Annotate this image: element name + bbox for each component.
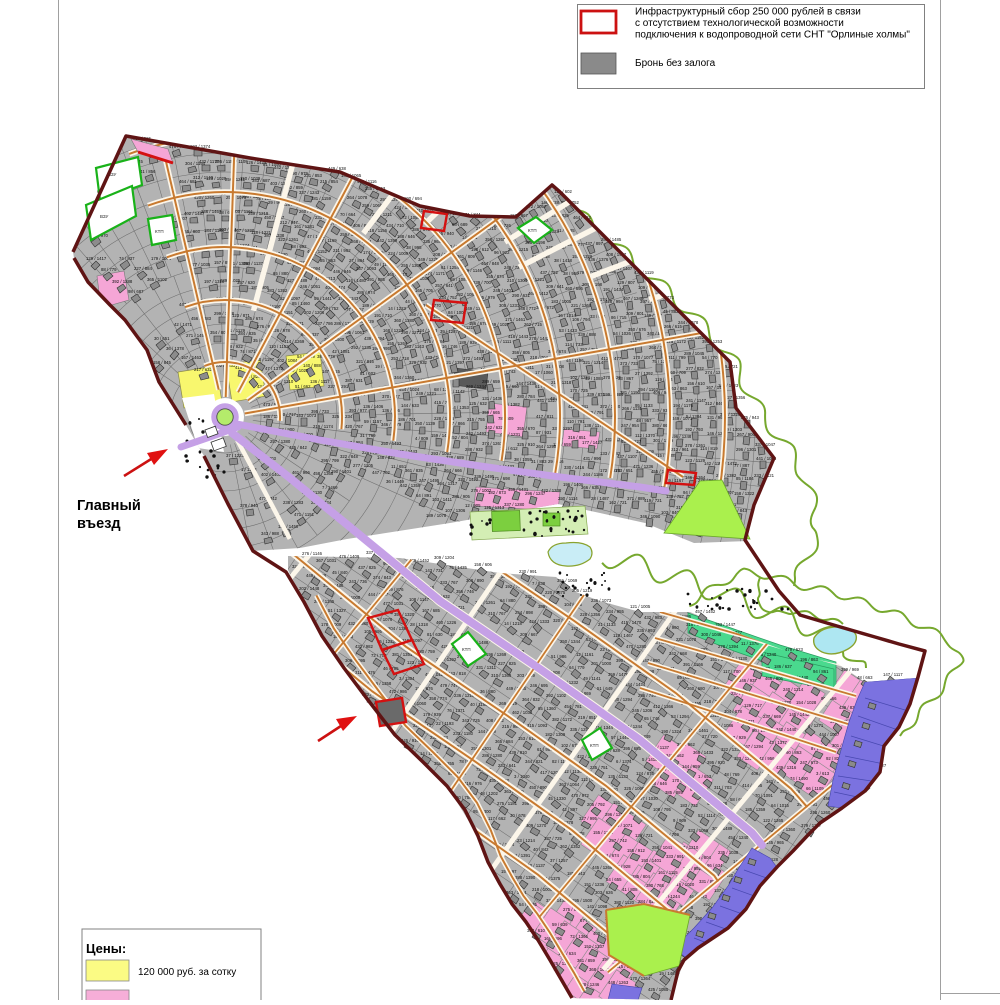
svg-text:219 / 1174: 219 / 1174 [313,424,334,429]
svg-text:253 / 718: 253 / 718 [391,356,410,361]
svg-text:155 / 874: 155 / 874 [486,274,505,279]
svg-text:380 / 1120: 380 / 1120 [614,900,635,905]
svg-text:148 / 772: 148 / 772 [518,306,537,311]
svg-text:462 / 1038: 462 / 1038 [512,710,533,715]
svg-text:344 / 821: 344 / 821 [525,759,544,764]
svg-text:1 / 653: 1 / 653 [698,774,712,779]
svg-text:247 / 954: 247 / 954 [621,423,640,428]
svg-text:123 / 659: 123 / 659 [553,442,572,447]
svg-text:144 / 959: 144 / 959 [682,764,701,769]
svg-text:61 / 1254: 61 / 1254 [441,265,460,270]
svg-text:64 / 891: 64 / 891 [416,493,432,498]
svg-text:356 / 746: 356 / 746 [456,589,475,594]
svg-text:86 / 715: 86 / 715 [611,315,627,320]
svg-text:337 / 725: 337 / 725 [544,836,563,841]
svg-text:437 / 1107: 437 / 1107 [617,454,638,459]
svg-text:346 / 1090: 346 / 1090 [640,514,661,519]
svg-text:254 / 898: 254 / 898 [515,610,534,615]
svg-text:38 / 995: 38 / 995 [406,245,422,250]
svg-text:116 / 1480: 116 / 1480 [346,278,367,283]
svg-text:217 / 632: 217 / 632 [194,367,213,372]
svg-text:361 / 809: 361 / 809 [457,254,476,259]
svg-text:64 / 880: 64 / 880 [500,598,516,603]
svg-text:296 / 1301: 296 / 1301 [736,447,757,452]
svg-text:333 / 1066: 333 / 1066 [688,828,709,833]
svg-text:196 / 863: 196 / 863 [800,657,819,662]
svg-text:45 / 840: 45 / 840 [332,570,348,575]
svg-text:202 / 1206: 202 / 1206 [304,310,325,315]
svg-text:88 / 779: 88 / 779 [101,267,117,272]
svg-text:450 / 890: 450 / 890 [529,785,548,790]
svg-text:230 / 991: 230 / 991 [519,569,538,574]
svg-text:103 / 1411: 103 / 1411 [432,497,453,502]
svg-text:343 / 725: 343 / 725 [462,718,481,723]
svg-text:59 / 1441: 59 / 1441 [314,296,333,301]
svg-text:387 / 631: 387 / 631 [345,378,364,383]
svg-text:74 / 1490: 74 / 1490 [790,776,809,781]
svg-text:48 / 1202: 48 / 1202 [480,791,499,796]
svg-text:161 / 1115: 161 / 1115 [658,870,678,875]
svg-text:66 / 1109: 66 / 1109 [806,786,824,791]
svg-text:125 / 1313: 125 / 1313 [484,505,505,510]
svg-text:275 / 1181: 275 / 1181 [497,801,518,806]
svg-text:182 / 873: 182 / 873 [488,490,507,495]
svg-text:461 / 966: 461 / 966 [292,470,311,475]
svg-text:59 / 639: 59 / 639 [552,922,568,927]
svg-text:30 / 678: 30 / 678 [510,813,526,818]
svg-text:288 / 932: 288 / 932 [465,447,484,452]
svg-text:7 / 1469: 7 / 1469 [322,485,338,490]
svg-text:209 / 667: 209 / 667 [520,632,539,637]
svg-text:258 / 1041: 258 / 1041 [652,845,673,850]
svg-text:59 / 1157: 59 / 1157 [364,419,382,424]
svg-text:424 / 1333: 424 / 1333 [529,619,550,624]
svg-text:356 / 1260: 356 / 1260 [485,237,506,242]
svg-text:144 / 1436: 144 / 1436 [516,381,537,386]
svg-text:365 / 1102: 365 / 1102 [147,277,168,282]
svg-text:90 / 863: 90 / 863 [786,750,802,755]
svg-text:165 / 705: 165 / 705 [415,288,434,293]
svg-text:33 / 867: 33 / 867 [618,376,634,381]
svg-text:140 / 888: 140 / 888 [303,363,322,368]
svg-text:312 / 846: 312 / 846 [705,401,724,406]
svg-text:131 / 1436: 131 / 1436 [482,396,503,401]
svg-text:42 / 956: 42 / 956 [759,756,775,761]
svg-text:16 / 746: 16 / 746 [442,344,458,349]
svg-text:391 / 1166: 391 / 1166 [683,662,704,667]
svg-text:219 / 851: 219 / 851 [578,715,597,720]
svg-text:65 / 880: 65 / 880 [273,271,289,276]
svg-text:470 / 1280: 470 / 1280 [626,644,647,649]
svg-text:42 / 897: 42 / 897 [562,807,578,812]
svg-text:399 / 969: 399 / 969 [841,667,860,672]
svg-text:143 / 731: 143 / 731 [425,568,444,573]
svg-text:123 / 1129: 123 / 1129 [685,458,706,463]
svg-text:31 / 769: 31 / 769 [360,433,376,438]
svg-text:233 / 641: 233 / 641 [498,763,517,768]
svg-text:220 / 1375: 220 / 1375 [545,590,566,595]
svg-text:167 / 685: 167 / 685 [422,608,441,613]
svg-text:447 / 702: 447 / 702 [372,470,391,475]
svg-text:53 / 1423: 53 / 1423 [559,328,578,333]
svg-text:47 / 1373: 47 / 1373 [265,366,284,371]
svg-text:121 / 1397: 121 / 1397 [444,360,465,365]
svg-text:264 / 1078: 264 / 1078 [347,195,368,200]
svg-text:158 / 606: 158 / 606 [474,562,493,567]
svg-text:171 / 1461: 171 / 1461 [505,317,526,322]
svg-text:156 / 610: 156 / 610 [687,381,706,386]
svg-text:325 / 910: 325 / 910 [517,442,536,447]
svg-text:121 / 1005: 121 / 1005 [630,604,651,609]
svg-text:136 / 1406: 136 / 1406 [363,404,384,409]
svg-text:309 / 1270: 309 / 1270 [526,823,547,828]
svg-text:48 / 769: 48 / 769 [724,772,740,777]
svg-text:364 / 666: 364 / 666 [444,468,463,473]
svg-text:391 / 885: 391 / 885 [367,277,386,282]
svg-text:277 / 832: 277 / 832 [686,366,705,371]
svg-text:342 / 668: 342 / 668 [669,651,688,656]
svg-text:31 / 883: 31 / 883 [531,459,547,464]
svg-text:ВЗУ: ВЗУ [100,214,109,219]
svg-text:143 / 651: 143 / 651 [615,468,634,473]
svg-text:54 / 770: 54 / 770 [702,355,718,360]
svg-text:260 / 709: 260 / 709 [668,370,687,375]
svg-text:360 / 1380: 360 / 1380 [394,318,415,323]
svg-text:211 / 962: 211 / 962 [333,248,351,253]
svg-text:17 / 1060: 17 / 1060 [535,370,554,375]
svg-text:343 / 687: 343 / 687 [252,178,271,183]
svg-text:Главный: Главный [77,498,141,514]
svg-text:285 / 804: 285 / 804 [632,874,651,879]
svg-text:415 / 1470: 415 / 1470 [621,620,642,625]
svg-text:53 / 1294: 53 / 1294 [671,714,690,719]
svg-text:37 / 1257: 37 / 1257 [550,858,569,863]
svg-text:170 / 1364: 170 / 1364 [630,976,651,981]
svg-text:151 / 1236: 151 / 1236 [584,882,605,887]
svg-text:28 / 1487: 28 / 1487 [591,496,610,501]
svg-text:185 / 1359: 185 / 1359 [745,807,766,812]
svg-text:359 / 665: 359 / 665 [482,410,501,415]
svg-text:327 / 995: 327 / 995 [579,816,598,821]
svg-text:309 / 801: 309 / 801 [626,311,645,316]
svg-text:470 / 972: 470 / 972 [571,793,590,798]
svg-text:162 / 721: 162 / 721 [609,500,628,505]
svg-text:85 / 863: 85 / 863 [320,258,336,263]
svg-text:300 / 1046: 300 / 1046 [701,632,722,637]
svg-text:337 / 1243: 337 / 1243 [299,190,320,195]
svg-text:52 / 1114: 52 / 1114 [698,813,716,818]
svg-text:85 / 1460: 85 / 1460 [292,301,311,306]
svg-text:215 / 854: 215 / 854 [320,179,339,184]
svg-text:94 / 861: 94 / 861 [813,669,829,674]
svg-text:48 / 957: 48 / 957 [636,418,652,423]
svg-text:378 / 940: 378 / 940 [240,503,259,508]
svg-text:110 / 791: 110 / 791 [567,419,585,424]
svg-text:181 / 1159: 181 / 1159 [311,196,332,201]
svg-text:217 / 1318: 217 / 1318 [551,380,572,385]
svg-text:361 / 859: 361 / 859 [577,958,596,963]
svg-text:98 / 687: 98 / 687 [128,289,144,294]
svg-text:242 / 632: 242 / 632 [485,425,504,430]
svg-text:436 / 1376: 436 / 1376 [588,257,609,262]
svg-text:234 / 752: 234 / 752 [439,295,458,300]
svg-text:3 / 613: 3 / 613 [816,771,830,776]
svg-text:68 / 689: 68 / 689 [452,222,468,227]
svg-text:12 / 905: 12 / 905 [465,503,481,508]
svg-text:КТП: КТП [590,743,599,748]
svg-text:Бронь без залога: Бронь без залога [635,57,716,69]
svg-text:30 / 651: 30 / 651 [154,336,170,341]
svg-text:476 / 1409: 476 / 1409 [339,554,360,559]
svg-text:471 / 1151: 471 / 1151 [294,512,315,517]
svg-text:27 / 720: 27 / 720 [702,734,718,739]
svg-text:245 / 1206: 245 / 1206 [632,708,653,713]
svg-text:5 / 1384: 5 / 1384 [686,414,702,419]
svg-text:308 / 890: 308 / 890 [466,578,485,583]
svg-text:138 / 787: 138 / 787 [666,494,685,499]
svg-text:358 / 774: 358 / 774 [429,696,448,701]
svg-text:417 / 811: 417 / 811 [536,414,554,419]
svg-text:196 / 1248: 196 / 1248 [671,434,692,439]
svg-text:262 / 715: 262 / 715 [524,322,543,327]
svg-text:412 / 1366: 412 / 1366 [653,704,674,709]
svg-text:380 / 765: 380 / 765 [646,883,665,888]
svg-text:182 / 1309: 182 / 1309 [545,732,566,737]
svg-text:170 / 1077: 170 / 1077 [633,355,654,360]
svg-text:110 / 1152: 110 / 1152 [269,344,289,349]
svg-text:72 / 1366: 72 / 1366 [570,934,589,939]
svg-text:231 / 1078: 231 / 1078 [676,637,697,642]
svg-text:382 / 1172: 382 / 1172 [552,717,573,722]
svg-text:460 / 695: 460 / 695 [565,286,584,291]
svg-text:14 / 1218: 14 / 1218 [504,621,523,626]
svg-text:255 / 1308: 255 / 1308 [401,263,422,268]
svg-text:368 / 1433: 368 / 1433 [693,750,714,755]
svg-text:269 / 1244: 269 / 1244 [466,384,487,389]
svg-text:196 / 1269: 196 / 1269 [486,652,507,657]
svg-text:357 / 1320: 357 / 1320 [394,612,415,617]
svg-text:231 / 853: 231 / 853 [304,173,323,178]
svg-text:286 / 905: 286 / 905 [452,494,471,499]
svg-text:454 / 1240: 454 / 1240 [728,835,749,840]
svg-text:361 / 835: 361 / 835 [405,468,424,473]
svg-text:297 / 742: 297 / 742 [609,838,628,843]
svg-text:289 / 659: 289 / 659 [482,379,501,384]
svg-text:42 / 1081: 42 / 1081 [332,349,351,354]
svg-text:437 / 722: 437 / 722 [540,270,559,275]
svg-text:278 / 1442: 278 / 1442 [529,336,550,341]
svg-text:7 / 838: 7 / 838 [532,581,546,586]
svg-text:363 / 1064: 363 / 1064 [559,782,580,787]
svg-text:198 / 612: 198 / 612 [471,247,490,252]
svg-text:237 / 669: 237 / 669 [763,714,782,719]
svg-text:322 / 848: 322 / 848 [340,454,359,459]
svg-text:74 / 871: 74 / 871 [240,349,256,354]
svg-text:351 / 1069: 351 / 1069 [557,578,578,583]
svg-text:330 / 1416: 330 / 1416 [564,465,585,470]
svg-text:238 / 1283: 238 / 1283 [283,500,304,505]
svg-text:21 / 1133: 21 / 1133 [598,622,616,627]
svg-text:70 / 1091: 70 / 1091 [755,793,774,798]
svg-text:193 / 1401: 193 / 1401 [641,858,662,863]
svg-text:75 / 1435: 75 / 1435 [449,565,468,570]
svg-text:364 / 832: 364 / 832 [522,697,541,702]
svg-text:65 / 1360: 65 / 1360 [538,706,557,711]
svg-text:362 / 1352: 362 / 1352 [560,844,581,849]
svg-text:64 / 1015: 64 / 1015 [771,803,790,808]
svg-text:4 / 809: 4 / 809 [415,436,429,441]
svg-text:170 / 725: 170 / 725 [570,388,589,393]
svg-text:86 / 634: 86 / 634 [707,863,723,868]
svg-text:124 / 875: 124 / 875 [636,771,655,776]
svg-text:370 / 932: 370 / 932 [409,360,428,365]
svg-text:42 / 1471: 42 / 1471 [174,322,193,327]
svg-text:6 / 1374: 6 / 1374 [616,759,632,764]
svg-text:343 / 988: 343 / 988 [261,531,280,536]
svg-text:419 / 721: 419 / 721 [644,498,663,503]
svg-text:448 / 1263: 448 / 1263 [608,980,629,985]
svg-text:371 / 889: 371 / 889 [627,496,646,501]
svg-text:242 / 1493: 242 / 1493 [466,431,487,436]
svg-text:с отсутствием технологической: с отсутствием технологической возможност… [635,18,844,29]
svg-text:155 / 912: 155 / 912 [627,848,646,853]
svg-text:309 / 1204: 309 / 1204 [434,555,455,560]
svg-text:414 / 1269: 414 / 1269 [284,339,305,344]
svg-text:337 / 1280: 337 / 1280 [504,502,525,507]
svg-text:221 / 1269: 221 / 1269 [571,303,592,308]
svg-text:247 / 673: 247 / 673 [800,760,819,765]
svg-text:331 / 1311: 331 / 1311 [476,665,497,670]
svg-text:28 / 1318: 28 / 1318 [410,622,429,627]
svg-text:235 / 993: 235 / 993 [637,628,656,633]
svg-text:395 / 733: 395 / 733 [311,409,330,414]
svg-text:191 / 710: 191 / 710 [374,313,393,318]
svg-text:129 / 1417: 129 / 1417 [86,256,107,261]
svg-text:288 / 1390: 288 / 1390 [515,875,536,880]
svg-text:477 / 1031: 477 / 1031 [383,601,404,606]
svg-text:95 / 1133: 95 / 1133 [635,403,653,408]
svg-text:117 / 700: 117 / 700 [723,669,741,674]
svg-text:390 / 1137: 390 / 1137 [243,261,264,266]
svg-text:9 / 909: 9 / 909 [673,818,687,823]
svg-text:227 / 825: 227 / 825 [498,661,517,666]
svg-text:444 / 1424: 444 / 1424 [625,682,646,687]
svg-text:158 / 845: 158 / 845 [153,360,172,365]
svg-text:51 / 986: 51 / 986 [551,654,567,659]
svg-text:439 / 1316: 439 / 1316 [776,765,797,770]
svg-text:237 / 786: 237 / 786 [315,321,334,326]
svg-text:322 / 1261: 322 / 1261 [278,237,299,242]
svg-text:64 / 779: 64 / 779 [569,665,585,670]
svg-text:167 / 1463: 167 / 1463 [181,355,202,360]
svg-text:432 / 983: 432 / 983 [644,615,663,620]
svg-text:243 / 736: 243 / 736 [349,579,368,584]
svg-text:346 / 1479: 346 / 1479 [381,422,402,427]
svg-text:14 / 1223: 14 / 1223 [388,306,407,311]
svg-text:310 / 1369: 310 / 1369 [491,673,512,678]
svg-text:36 / 880: 36 / 880 [480,689,496,694]
svg-text:373 / 733: 373 / 733 [620,361,639,366]
svg-text:437 / 825: 437 / 825 [358,565,377,570]
svg-text:68 / 692: 68 / 692 [291,244,307,249]
svg-text:284 / 835: 284 / 835 [238,331,257,336]
svg-text:27 / 1392: 27 / 1392 [635,371,654,376]
svg-text:106 / 794: 106 / 794 [572,317,591,322]
svg-text:290 / 1401: 290 / 1401 [331,469,352,474]
svg-text:303 / 626: 303 / 626 [595,890,614,895]
svg-text:215 / 755: 215 / 755 [467,417,486,422]
svg-text:23 / 1214: 23 / 1214 [517,838,536,843]
svg-text:224 / 1009: 224 / 1009 [388,251,409,256]
svg-text:464 / 848: 464 / 848 [481,261,500,266]
svg-text:428 / 994: 428 / 994 [605,299,624,304]
svg-text:471 / 698: 471 / 698 [492,476,511,481]
svg-text:117 / 662: 117 / 662 [488,816,506,821]
svg-text:311 / 703: 311 / 703 [714,785,732,790]
svg-text:118 / 1467: 118 / 1467 [613,633,634,638]
svg-text:104 / 878: 104 / 878 [724,709,743,714]
svg-text:114 / 819: 114 / 819 [700,446,718,451]
svg-text:286 / 974: 286 / 974 [357,290,376,295]
svg-text:19 / 1465: 19 / 1465 [659,971,678,976]
svg-text:454 / 781: 454 / 781 [564,704,583,709]
svg-text:434 / 710: 434 / 710 [386,223,405,228]
svg-text:356 / 805: 356 / 805 [512,350,531,355]
svg-text:27 / 894: 27 / 894 [349,258,365,263]
svg-text:292 / 1102: 292 / 1102 [546,693,567,698]
svg-text:250 / 1139: 250 / 1139 [415,421,436,426]
svg-text:359 / 1476: 359 / 1476 [608,672,629,677]
svg-text:81 / 630: 81 / 630 [427,632,443,637]
svg-text:227 / 884: 227 / 884 [134,266,153,271]
svg-text:45 / 1330: 45 / 1330 [548,796,567,801]
svg-text:228 / 1356: 228 / 1356 [580,612,601,617]
svg-text:277 / 1105: 277 / 1105 [353,463,374,468]
svg-text:22 / 1193: 22 / 1193 [436,721,454,726]
svg-text:51 / 1327: 51 / 1327 [328,608,347,613]
svg-text:418 / 1443: 418 / 1443 [508,334,529,339]
svg-text:70 / 664: 70 / 664 [340,212,356,217]
svg-text:248 / 1401: 248 / 1401 [493,288,514,293]
svg-text:подключения к водопроводной се: подключения к водопроводной сети СНТ "Ор… [635,30,910,41]
svg-text:385 / 674: 385 / 674 [245,316,264,321]
svg-text:Инфраструктурный сбор 250 000: Инфраструктурный сбор 250 000 рублей в с… [635,6,861,18]
svg-text:246 / 1051: 246 / 1051 [300,284,321,289]
svg-text:310 / 767: 310 / 767 [488,611,507,616]
svg-text:141 / 1098: 141 / 1098 [587,904,608,909]
svg-text:120 000 руб. за сотку: 120 000 руб. за сотку [138,966,236,978]
svg-text:въезд: въезд [77,516,121,532]
svg-text:431 / 996: 431 / 996 [583,456,602,461]
svg-text:309 / 641: 309 / 641 [546,284,565,289]
svg-text:14 / 1353: 14 / 1353 [451,405,470,410]
svg-text:147 / 1117: 147 / 1117 [883,672,903,677]
svg-text:385 / 889: 385 / 889 [665,790,684,795]
svg-text:186 / 701: 186 / 701 [398,417,417,422]
svg-text:383 / 1143: 383 / 1143 [404,344,425,349]
svg-text:250 / 1344: 250 / 1344 [560,639,581,644]
svg-text:151 / 1337: 151 / 1337 [584,944,605,949]
svg-text:188 / 646: 188 / 646 [397,234,416,239]
svg-text:240 / 1214: 240 / 1214 [783,687,804,692]
svg-text:435 / 842: 435 / 842 [289,445,308,450]
svg-text:129 / 807: 129 / 807 [617,280,636,285]
svg-text:49 / 1141: 49 / 1141 [583,676,601,681]
svg-text:85 / 1184: 85 / 1184 [736,476,754,481]
svg-text:333 / 767: 333 / 767 [440,580,459,585]
svg-text:41 / 856: 41 / 856 [140,169,156,174]
svg-text:366 / 635: 366 / 635 [581,485,600,490]
